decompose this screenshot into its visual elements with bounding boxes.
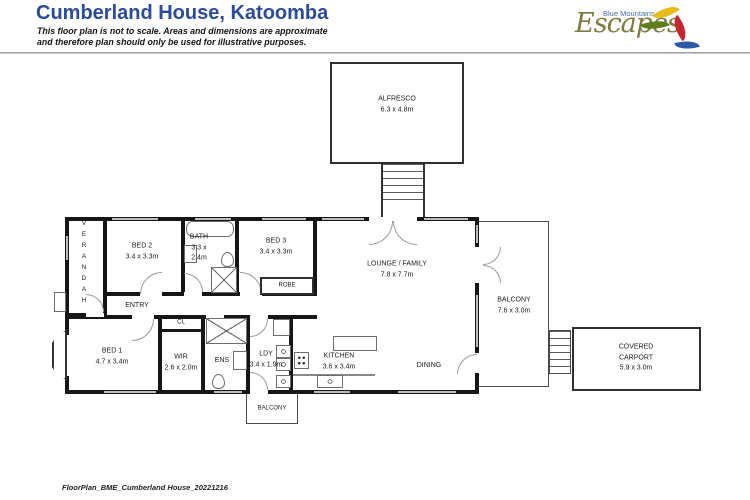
wall-verandah-inner: [103, 217, 107, 317]
page-title: Cumberland House, Katoomba: [36, 2, 328, 25]
room-label-carport: COVERED CARPORT 5.9 x 3.0m: [619, 342, 654, 374]
leaf-icon: [674, 37, 700, 53]
door-arc-ldy-balcony: [250, 372, 268, 390]
door-arc-dining: [457, 354, 477, 374]
room-label-kitchen: KITCHEN 3.6 x 3.4m: [323, 352, 356, 373]
door-arc-ldy: [250, 319, 268, 337]
room-label-balcony-bottom: BALCONY: [258, 405, 287, 414]
laundry-tub: [276, 375, 291, 388]
header-divider: [0, 52, 750, 54]
room-label-ens: ENS: [215, 356, 229, 367]
room-label-bed3: BED 3 3.4 x 3.3m: [260, 237, 293, 258]
window: [104, 391, 156, 393]
bath-toilet: [221, 252, 234, 267]
door-arc-bath: [184, 273, 203, 292]
door-arc-entry: [86, 294, 104, 312]
kitchen-island: [333, 336, 377, 351]
room-label-alfresco: ALFRESCO 6.3 x 4.8m: [378, 95, 416, 116]
door-arc-bed3: [240, 272, 262, 294]
stove: [294, 352, 309, 369]
window: [314, 391, 350, 393]
footer-filename: FloorPlan_BME_Cumberland House_20221216: [62, 483, 228, 492]
kitchen-sink: [317, 375, 343, 388]
floorplan-page: Cumberland House, Katoomba This floor pl…: [0, 0, 750, 500]
wall-wir-ens: [201, 315, 205, 394]
room-label-balcony-right: BALCONY 7.6 x 3.0m: [497, 296, 530, 317]
window: [66, 236, 68, 260]
room-label-cl: CL: [177, 319, 185, 328]
room-label-entry: ENTRY: [125, 301, 149, 312]
room-label-bath: BATH 3.3 x 2.4m: [190, 232, 208, 264]
room-label-ldy: LDY 3.4 x 1.9m: [250, 350, 283, 371]
door-arc-lounge-left: [369, 221, 393, 245]
window: [322, 218, 364, 220]
alfresco-stairs: [381, 164, 425, 200]
window: [398, 391, 456, 393]
alfresco-stairs-landing: [381, 200, 425, 218]
window: [195, 218, 231, 220]
room-label-bed2: BED 2 3.4 x 3.3m: [126, 242, 159, 263]
balcony-stairs: [549, 330, 571, 374]
disclaimer-line2: and therefore plan should only be used f…: [37, 37, 328, 48]
disclaimer-text: This floor plan is not to scale. Areas a…: [37, 26, 328, 48]
window: [424, 218, 468, 220]
bay-window: [52, 330, 67, 380]
blue-mountains-escapes-logo: Blue Mountains Escapes: [573, 2, 723, 52]
room-label-dining: DINING: [417, 361, 442, 372]
window: [476, 225, 478, 243]
porch-step: [54, 292, 66, 312]
door-arc-bed2: [140, 272, 162, 294]
door-arc-bed1: [132, 319, 154, 341]
wall-bed1-wir: [158, 315, 162, 394]
ens-toilet: [212, 374, 225, 389]
disclaimer-line1: This floor plan is not to scale. Areas a…: [37, 26, 328, 37]
wall-cl-divider: [158, 329, 205, 332]
ens-sink: [233, 351, 247, 370]
window: [262, 218, 306, 220]
window: [112, 218, 158, 220]
room-label-wir: WIR 2.6 x 2.0m: [165, 353, 198, 374]
window: [476, 295, 478, 347]
ens-shower: [206, 318, 247, 344]
door-gap: [184, 292, 202, 296]
door-arc-lounge-right: [393, 221, 417, 245]
room-label-verandah: VERANDAH: [81, 220, 88, 308]
bath-shower: [211, 267, 237, 293]
room-label-lounge: LOUNGE / FAMILY 7.8 x 7.7m: [367, 260, 427, 281]
fridge: [273, 319, 290, 336]
door-gap: [86, 313, 104, 317]
room-label-robe: ROBE: [278, 282, 295, 291]
room-label-bed1: BED 1 4.7 x 3.4m: [96, 347, 129, 368]
window: [214, 391, 242, 393]
